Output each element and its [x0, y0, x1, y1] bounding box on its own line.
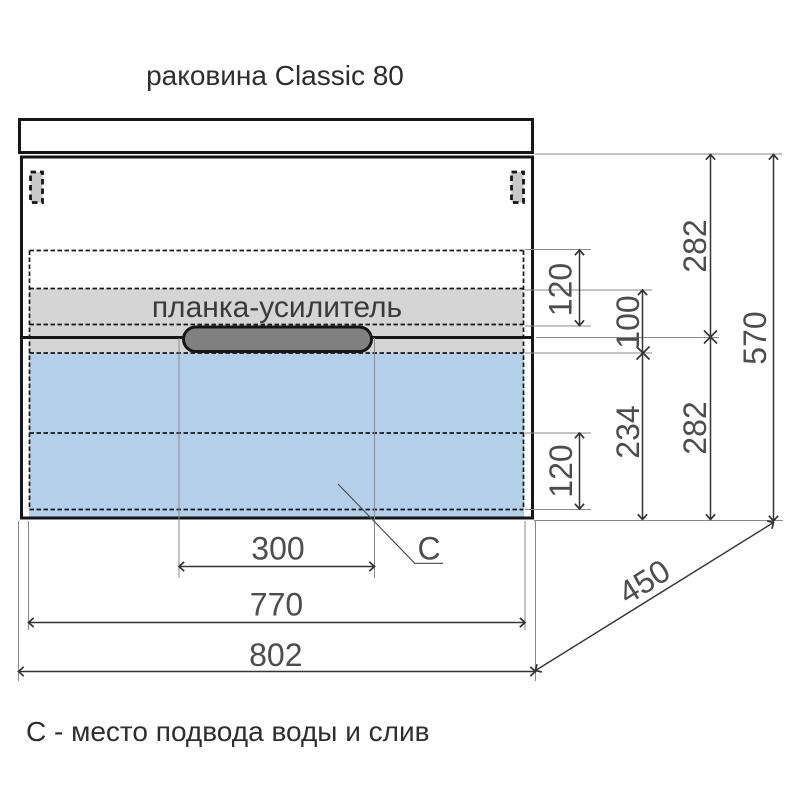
- svg-text:120: 120: [543, 444, 579, 497]
- svg-text:770: 770: [250, 586, 303, 622]
- svg-text:282: 282: [677, 401, 713, 454]
- svg-text:С - место подвода воды и слив: С - место подвода воды и слив: [26, 716, 429, 747]
- svg-text:802: 802: [249, 637, 302, 673]
- svg-text:100: 100: [610, 295, 646, 348]
- svg-text:300: 300: [251, 531, 304, 567]
- svg-text:570: 570: [737, 311, 773, 364]
- svg-text:планка-усилитель: планка-усилитель: [152, 291, 402, 324]
- svg-text:С: С: [417, 530, 440, 566]
- svg-text:120: 120: [543, 263, 579, 316]
- svg-text:раковина Classic 80: раковина Classic 80: [146, 60, 404, 91]
- svg-text:234: 234: [610, 405, 646, 458]
- svg-text:282: 282: [677, 219, 713, 272]
